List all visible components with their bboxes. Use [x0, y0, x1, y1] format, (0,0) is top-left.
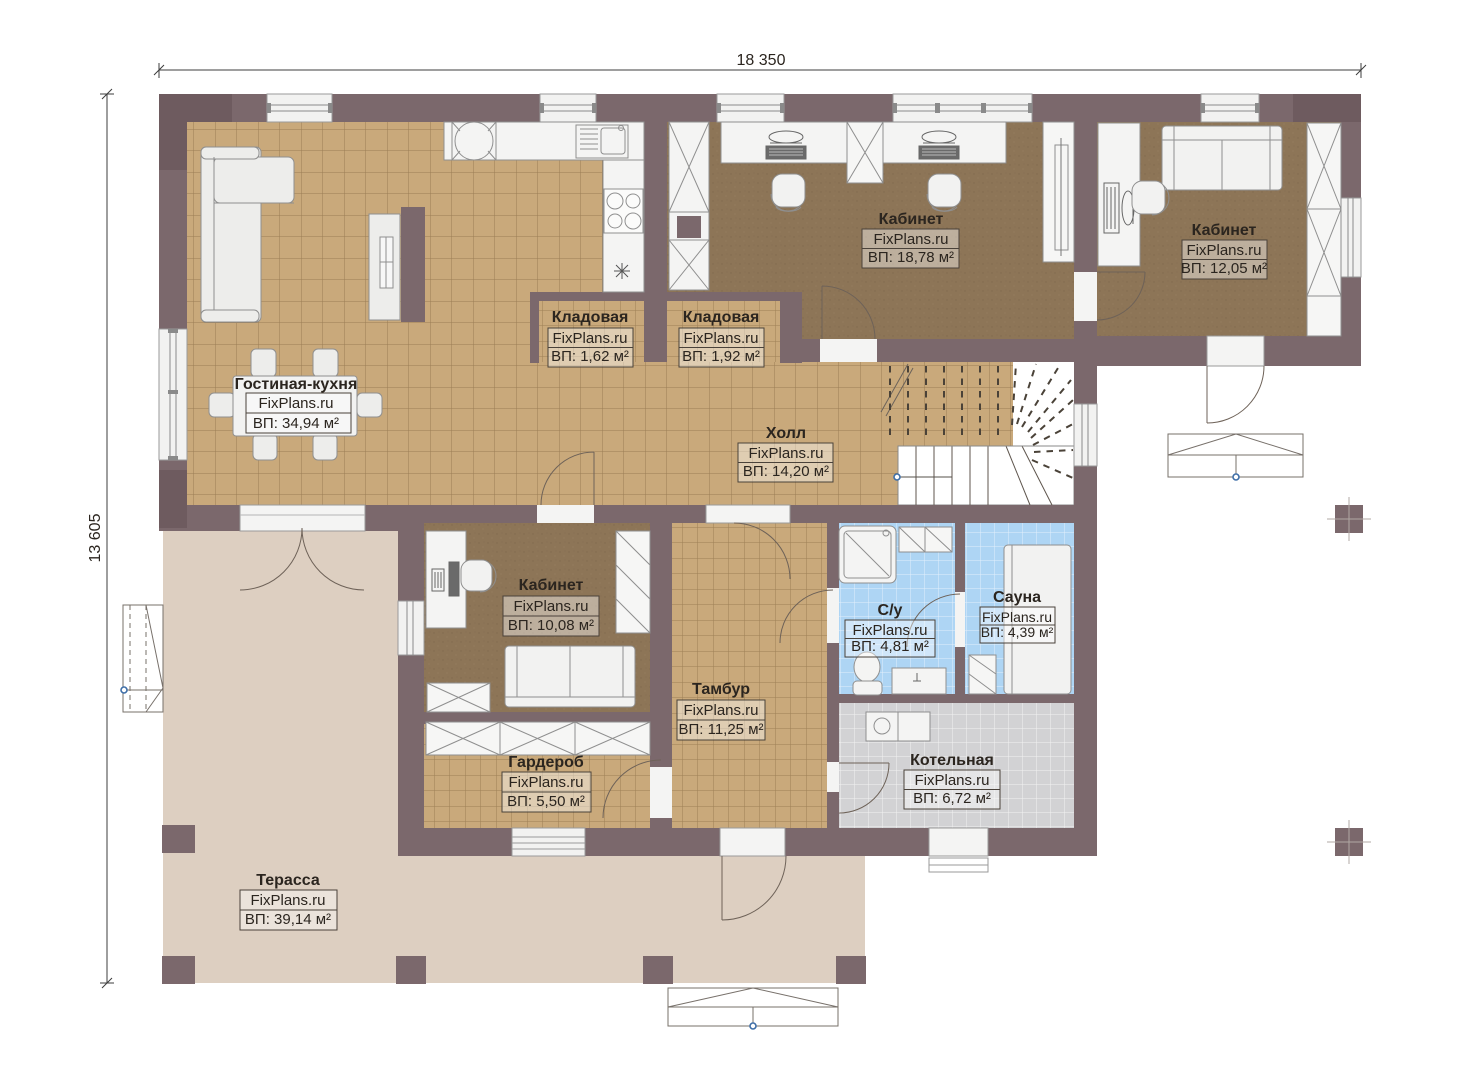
svg-text:FixPlans.ru: FixPlans.ru: [852, 622, 927, 639]
svg-text:Гостиная-кухня: Гостиная-кухня: [235, 376, 358, 393]
svg-text:ВП: 1,62 м²: ВП: 1,62 м²: [551, 348, 629, 365]
svg-text:Кабинет: Кабинет: [519, 577, 584, 594]
svg-text:ВП: 11,25 м²: ВП: 11,25 м²: [678, 721, 763, 738]
svg-text:FixPlans.ru: FixPlans.ru: [873, 231, 948, 248]
svg-text:ВП: 34,94 м²: ВП: 34,94 м²: [253, 415, 339, 432]
svg-text:FixPlans.ru: FixPlans.ru: [513, 598, 588, 615]
svg-text:FixPlans.ru: FixPlans.ru: [914, 772, 989, 789]
svg-text:ВП: 10,08 м²: ВП: 10,08 м²: [508, 617, 594, 634]
svg-text:Гардероб: Гардероб: [508, 754, 584, 771]
svg-text:FixPlans.ru: FixPlans.ru: [683, 702, 758, 719]
svg-text:FixPlans.ru: FixPlans.ru: [748, 445, 823, 462]
svg-text:Холл: Холл: [766, 425, 806, 442]
svg-text:ВП: 4,39 м²: ВП: 4,39 м²: [981, 624, 1054, 640]
svg-text:Кладовая: Кладовая: [683, 309, 760, 326]
svg-text:Кабинет: Кабинет: [879, 211, 944, 228]
svg-text:С/у: С/у: [878, 602, 903, 619]
svg-text:FixPlans.ru: FixPlans.ru: [258, 395, 333, 412]
svg-text:ВП: 39,14 м²: ВП: 39,14 м²: [245, 911, 331, 928]
svg-text:FixPlans.ru: FixPlans.ru: [1186, 242, 1261, 259]
svg-text:FixPlans.ru: FixPlans.ru: [552, 330, 627, 347]
svg-text:13 605: 13 605: [87, 513, 104, 562]
svg-text:ВП: 14,20 м²: ВП: 14,20 м²: [743, 463, 829, 480]
svg-text:ВП: 6,72 м²: ВП: 6,72 м²: [913, 790, 991, 807]
svg-text:ВП: 5,50 м²: ВП: 5,50 м²: [507, 793, 585, 810]
svg-text:Тамбур: Тамбур: [692, 681, 750, 698]
svg-text:ВП: 18,78 м²: ВП: 18,78 м²: [868, 249, 954, 266]
svg-text:FixPlans.ru: FixPlans.ru: [250, 892, 325, 909]
svg-text:Кабинет: Кабинет: [1192, 222, 1257, 239]
svg-text:ВП: 12,05 м²: ВП: 12,05 м²: [1181, 260, 1267, 277]
svg-text:FixPlans.ru: FixPlans.ru: [508, 774, 583, 791]
svg-text:FixPlans.ru: FixPlans.ru: [683, 330, 758, 347]
svg-text:Сауна: Сауна: [993, 589, 1041, 606]
svg-text:FixPlans.ru: FixPlans.ru: [982, 609, 1052, 625]
svg-text:Котельная: Котельная: [910, 752, 994, 769]
svg-text:Кладовая: Кладовая: [552, 309, 629, 326]
svg-text:ВП: 1,92 м²: ВП: 1,92 м²: [682, 348, 760, 365]
svg-text:Терасса: Терасса: [256, 872, 320, 889]
svg-text:18 350: 18 350: [737, 52, 786, 69]
svg-text:ВП: 4,81 м²: ВП: 4,81 м²: [851, 638, 929, 655]
